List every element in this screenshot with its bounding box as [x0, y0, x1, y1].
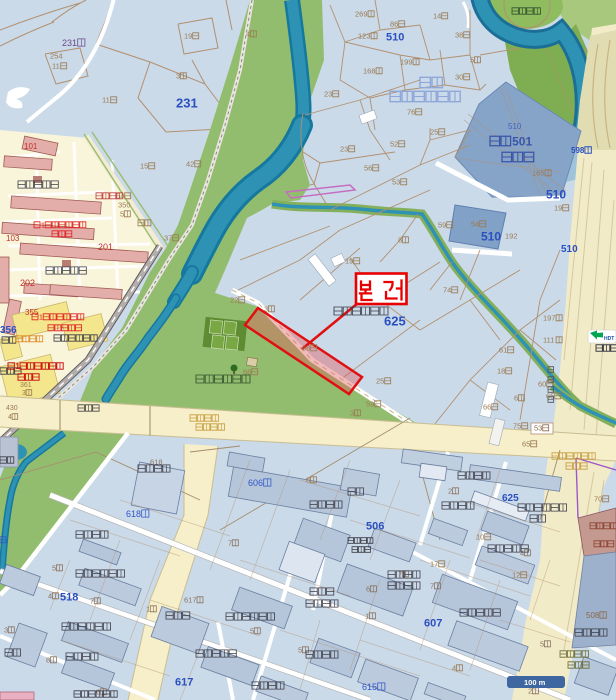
svg-text:54: 54	[471, 220, 479, 229]
svg-text:510: 510	[561, 244, 578, 255]
svg-text:111: 111	[543, 336, 554, 345]
svg-text:25: 25	[376, 377, 384, 386]
svg-text:23: 23	[324, 90, 332, 99]
svg-text:17: 17	[430, 560, 438, 569]
svg-text:19: 19	[345, 257, 353, 266]
svg-text:607: 607	[424, 618, 442, 630]
svg-text:168: 168	[363, 67, 376, 76]
svg-text:510: 510	[481, 230, 501, 244]
svg-text:60: 60	[538, 380, 546, 389]
svg-text:8: 8	[306, 476, 310, 485]
svg-text:4: 4	[48, 592, 52, 601]
svg-text:7: 7	[430, 582, 434, 591]
svg-text:38: 38	[455, 31, 463, 40]
svg-text:123: 123	[358, 32, 371, 41]
svg-text:25: 25	[430, 128, 438, 137]
svg-text:65: 65	[522, 440, 530, 449]
svg-text:5: 5	[298, 646, 302, 655]
svg-text:617: 617	[175, 677, 193, 689]
svg-text:3: 3	[350, 409, 354, 418]
svg-text:61: 61	[499, 346, 507, 355]
svg-text:4: 4	[246, 30, 250, 39]
svg-text:101: 101	[24, 142, 38, 151]
svg-text:202: 202	[20, 278, 35, 288]
svg-text:66: 66	[483, 403, 491, 412]
svg-text:192: 192	[505, 232, 518, 241]
svg-text:4: 4	[8, 414, 12, 421]
svg-text:430: 430	[6, 405, 18, 412]
svg-text:75: 75	[513, 422, 521, 431]
svg-text:7: 7	[90, 597, 94, 606]
svg-text:103: 103	[6, 234, 20, 243]
svg-text:HDT: HDT	[604, 336, 614, 342]
svg-text:8: 8	[46, 656, 50, 665]
svg-text:30: 30	[455, 73, 463, 82]
svg-text:68: 68	[302, 344, 310, 353]
svg-text:5: 5	[540, 640, 544, 649]
svg-text:14: 14	[433, 12, 441, 21]
svg-text:615: 615	[362, 682, 377, 692]
svg-text:5: 5	[250, 627, 254, 636]
svg-text:74: 74	[443, 286, 451, 295]
svg-text:5: 5	[470, 56, 474, 65]
svg-text:3: 3	[22, 390, 26, 397]
svg-text:598: 598	[571, 146, 585, 155]
svg-text:5: 5	[120, 210, 124, 219]
svg-text:510: 510	[546, 188, 566, 202]
svg-text:197: 197	[543, 314, 556, 323]
svg-text:59: 59	[366, 400, 374, 409]
svg-text:618: 618	[126, 509, 141, 519]
svg-text:355: 355	[25, 308, 39, 317]
svg-text:59: 59	[438, 221, 446, 230]
svg-text:510: 510	[508, 122, 522, 131]
svg-text:76: 76	[407, 108, 415, 117]
svg-text:19: 19	[554, 204, 562, 213]
svg-text:11: 11	[102, 96, 110, 105]
svg-text:52: 52	[390, 140, 398, 149]
svg-text:22: 22	[230, 296, 238, 305]
svg-text:6: 6	[366, 585, 370, 594]
svg-text:199: 199	[400, 58, 413, 67]
svg-text:1: 1	[146, 605, 150, 614]
svg-text:86: 86	[390, 20, 398, 29]
svg-text:56: 56	[364, 164, 372, 173]
svg-text:4: 4	[452, 664, 456, 673]
svg-text:510: 510	[386, 32, 404, 44]
svg-text:2: 2	[448, 487, 452, 496]
svg-text:356: 356	[0, 325, 17, 336]
svg-text:625: 625	[502, 493, 519, 504]
svg-text:6: 6	[514, 394, 518, 403]
svg-text:501: 501	[512, 135, 532, 149]
svg-text:10: 10	[476, 533, 484, 542]
svg-text:100 m: 100 m	[524, 678, 546, 687]
svg-text:12: 12	[512, 571, 520, 580]
svg-text:53: 53	[392, 178, 400, 187]
svg-text:53: 53	[534, 424, 542, 433]
svg-text:3: 3	[4, 626, 8, 635]
svg-text:231: 231	[62, 38, 77, 48]
svg-text:606: 606	[248, 478, 263, 488]
svg-text:506: 506	[366, 521, 384, 533]
svg-text:165: 165	[532, 169, 545, 178]
svg-text:11: 11	[52, 62, 60, 71]
svg-text:23: 23	[340, 145, 348, 154]
svg-text:617: 617	[184, 596, 197, 605]
svg-text:201: 201	[98, 242, 113, 252]
svg-text:3: 3	[176, 72, 180, 81]
svg-text:1: 1	[39, 313, 43, 322]
svg-text:8: 8	[398, 236, 402, 245]
svg-text:19: 19	[184, 32, 192, 41]
svg-text:269: 269	[355, 10, 368, 19]
svg-text:3: 3	[264, 305, 268, 314]
svg-text:625: 625	[384, 313, 406, 328]
svg-text:254: 254	[50, 52, 63, 61]
svg-text:231: 231	[176, 95, 198, 110]
svg-text:5: 5	[52, 564, 56, 573]
svg-text:42: 42	[186, 160, 194, 169]
svg-text:15: 15	[140, 162, 148, 171]
svg-text:1: 1	[41, 221, 45, 230]
svg-text:37: 37	[164, 234, 172, 243]
svg-text:361: 361	[20, 382, 32, 389]
svg-text:518: 518	[60, 592, 78, 604]
svg-text:508: 508	[586, 611, 600, 620]
svg-text:18: 18	[497, 367, 505, 376]
svg-text:4: 4	[520, 549, 524, 558]
svg-text:1: 1	[15, 362, 20, 371]
svg-text:1: 1	[365, 612, 369, 621]
svg-text:7: 7	[228, 539, 232, 548]
svg-text:350: 350	[118, 201, 131, 210]
svg-text:70: 70	[594, 495, 602, 504]
